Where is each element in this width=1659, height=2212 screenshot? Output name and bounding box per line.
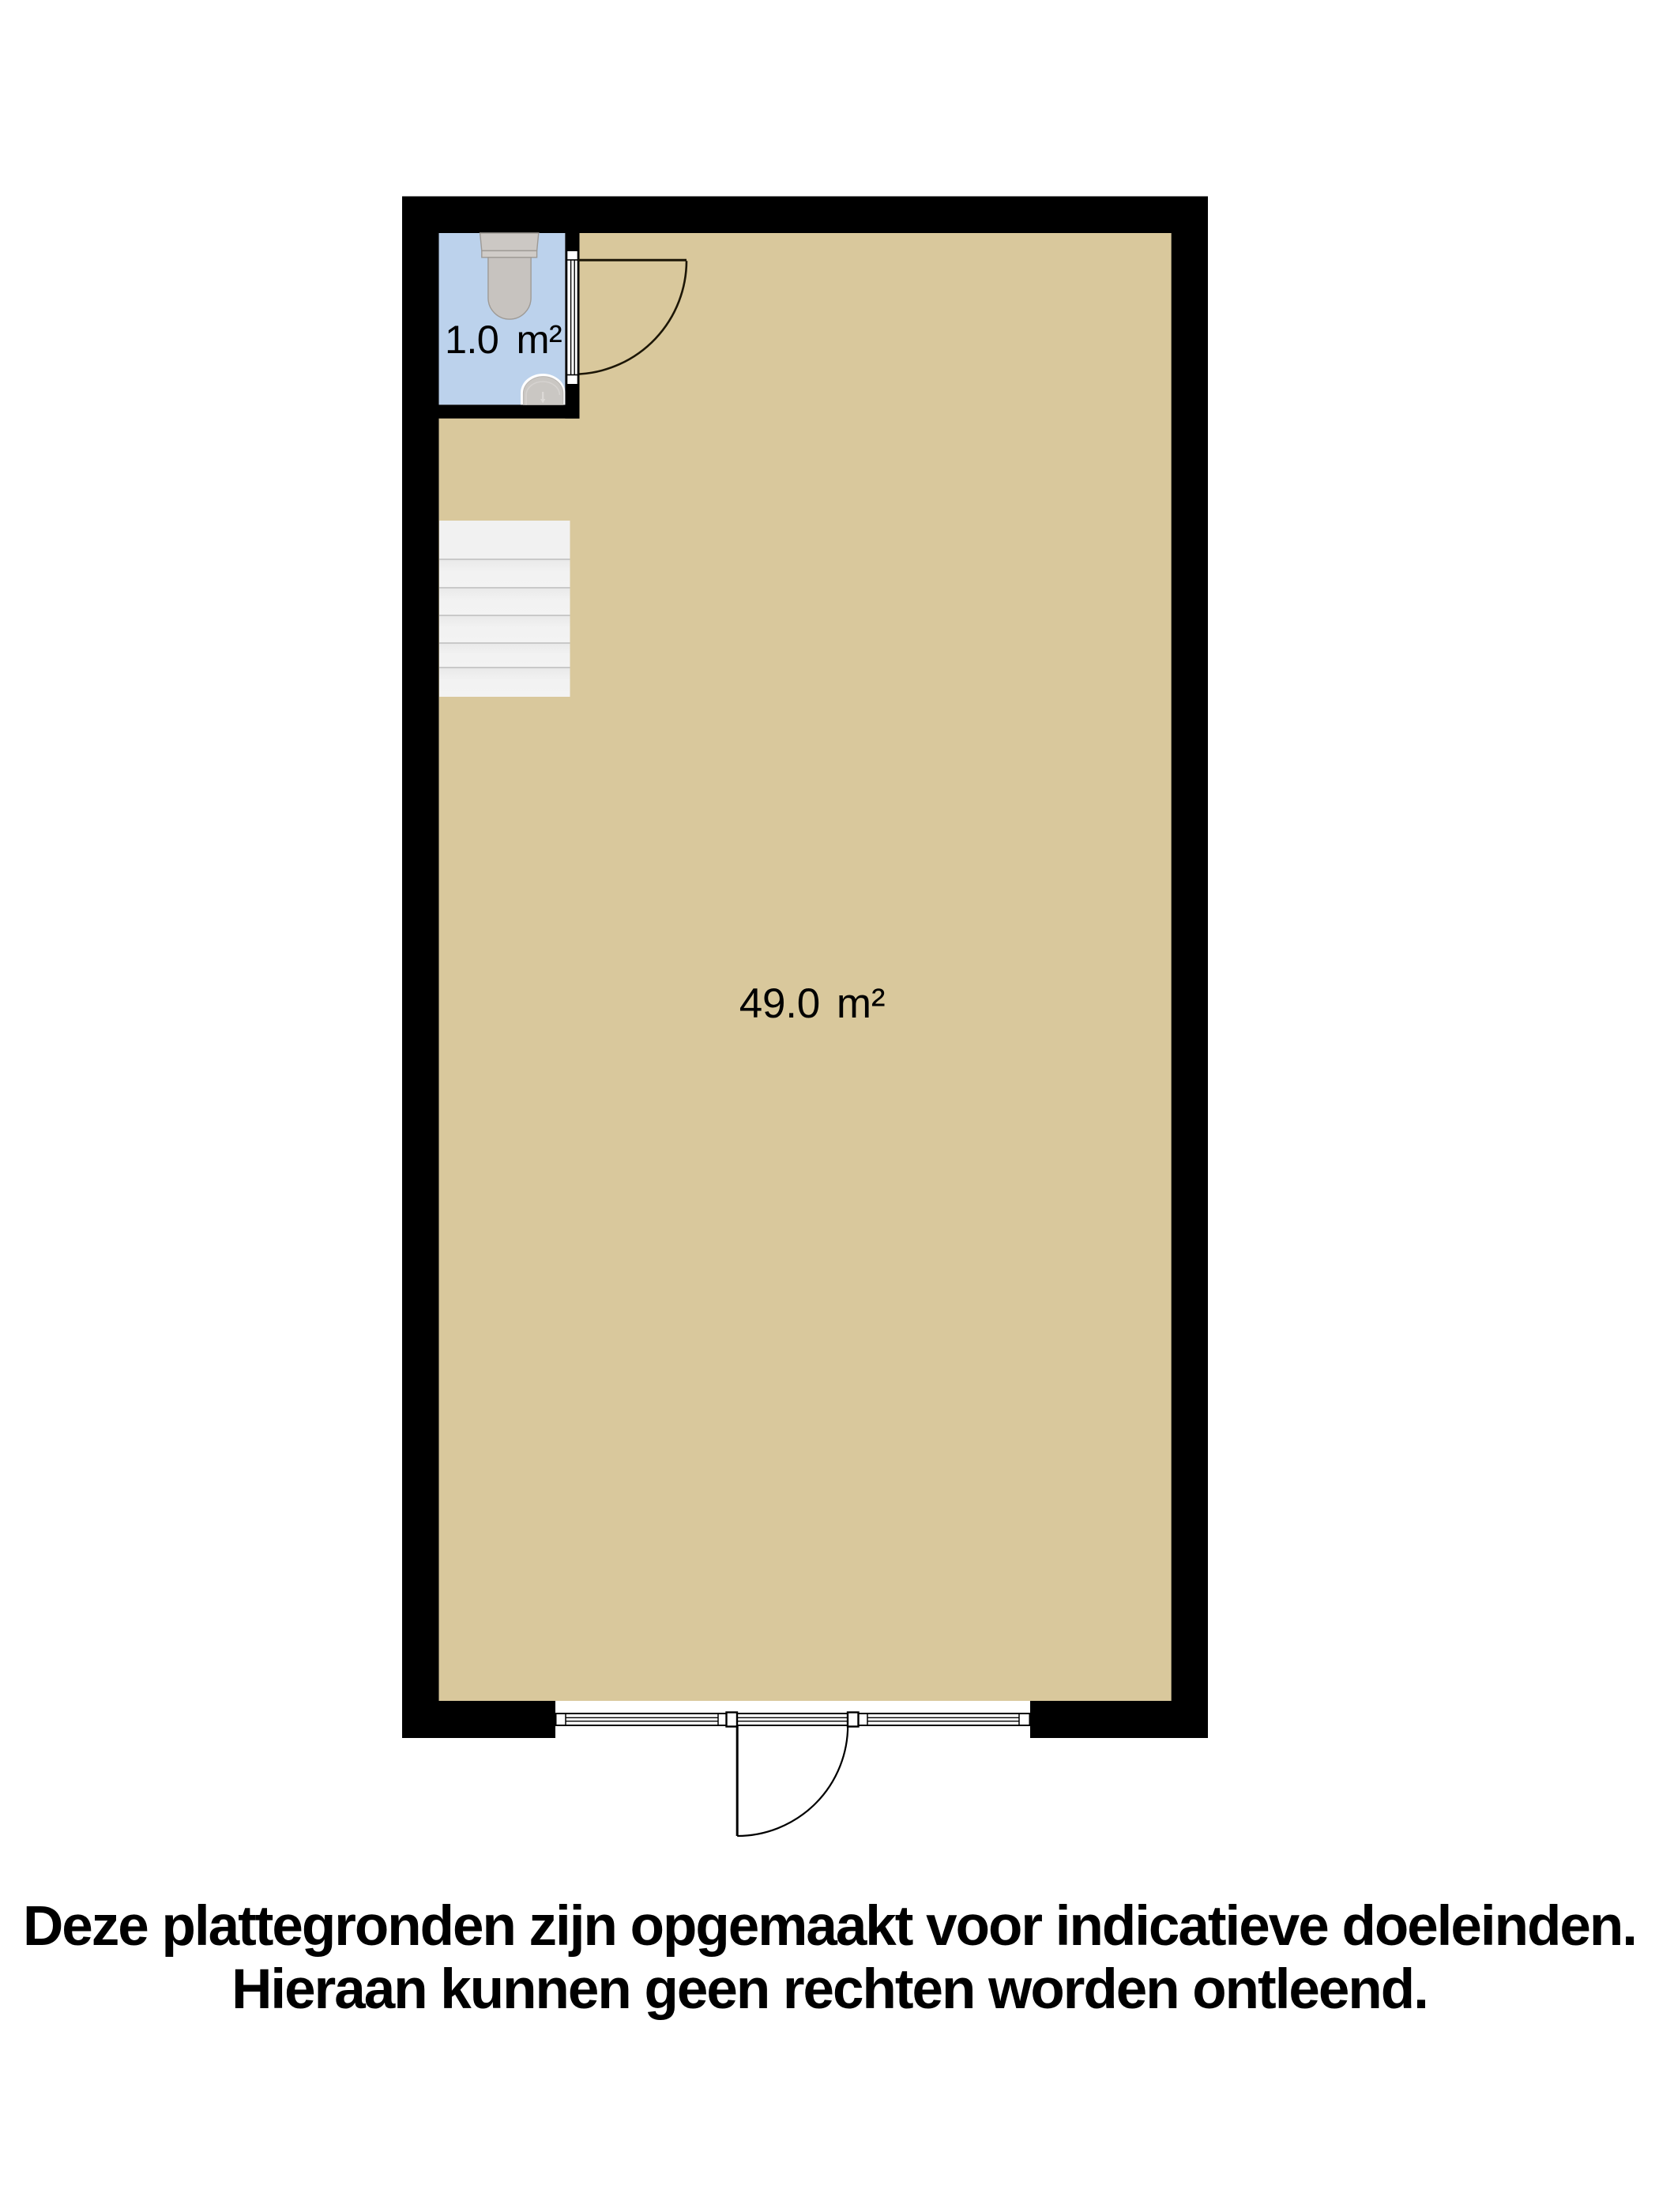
svg-text:49.0 m²: 49.0 m² [739, 980, 886, 1027]
svg-text:Hieraan kunnen geen rechten wo: Hieraan kunnen geen rechten worden ontle… [231, 1958, 1428, 2021]
svg-text:1.0 m²: 1.0 m² [445, 317, 562, 362]
svg-text:Deze plattegronden zijn opgema: Deze plattegronden zijn opgemaakt voor i… [23, 1895, 1636, 1958]
